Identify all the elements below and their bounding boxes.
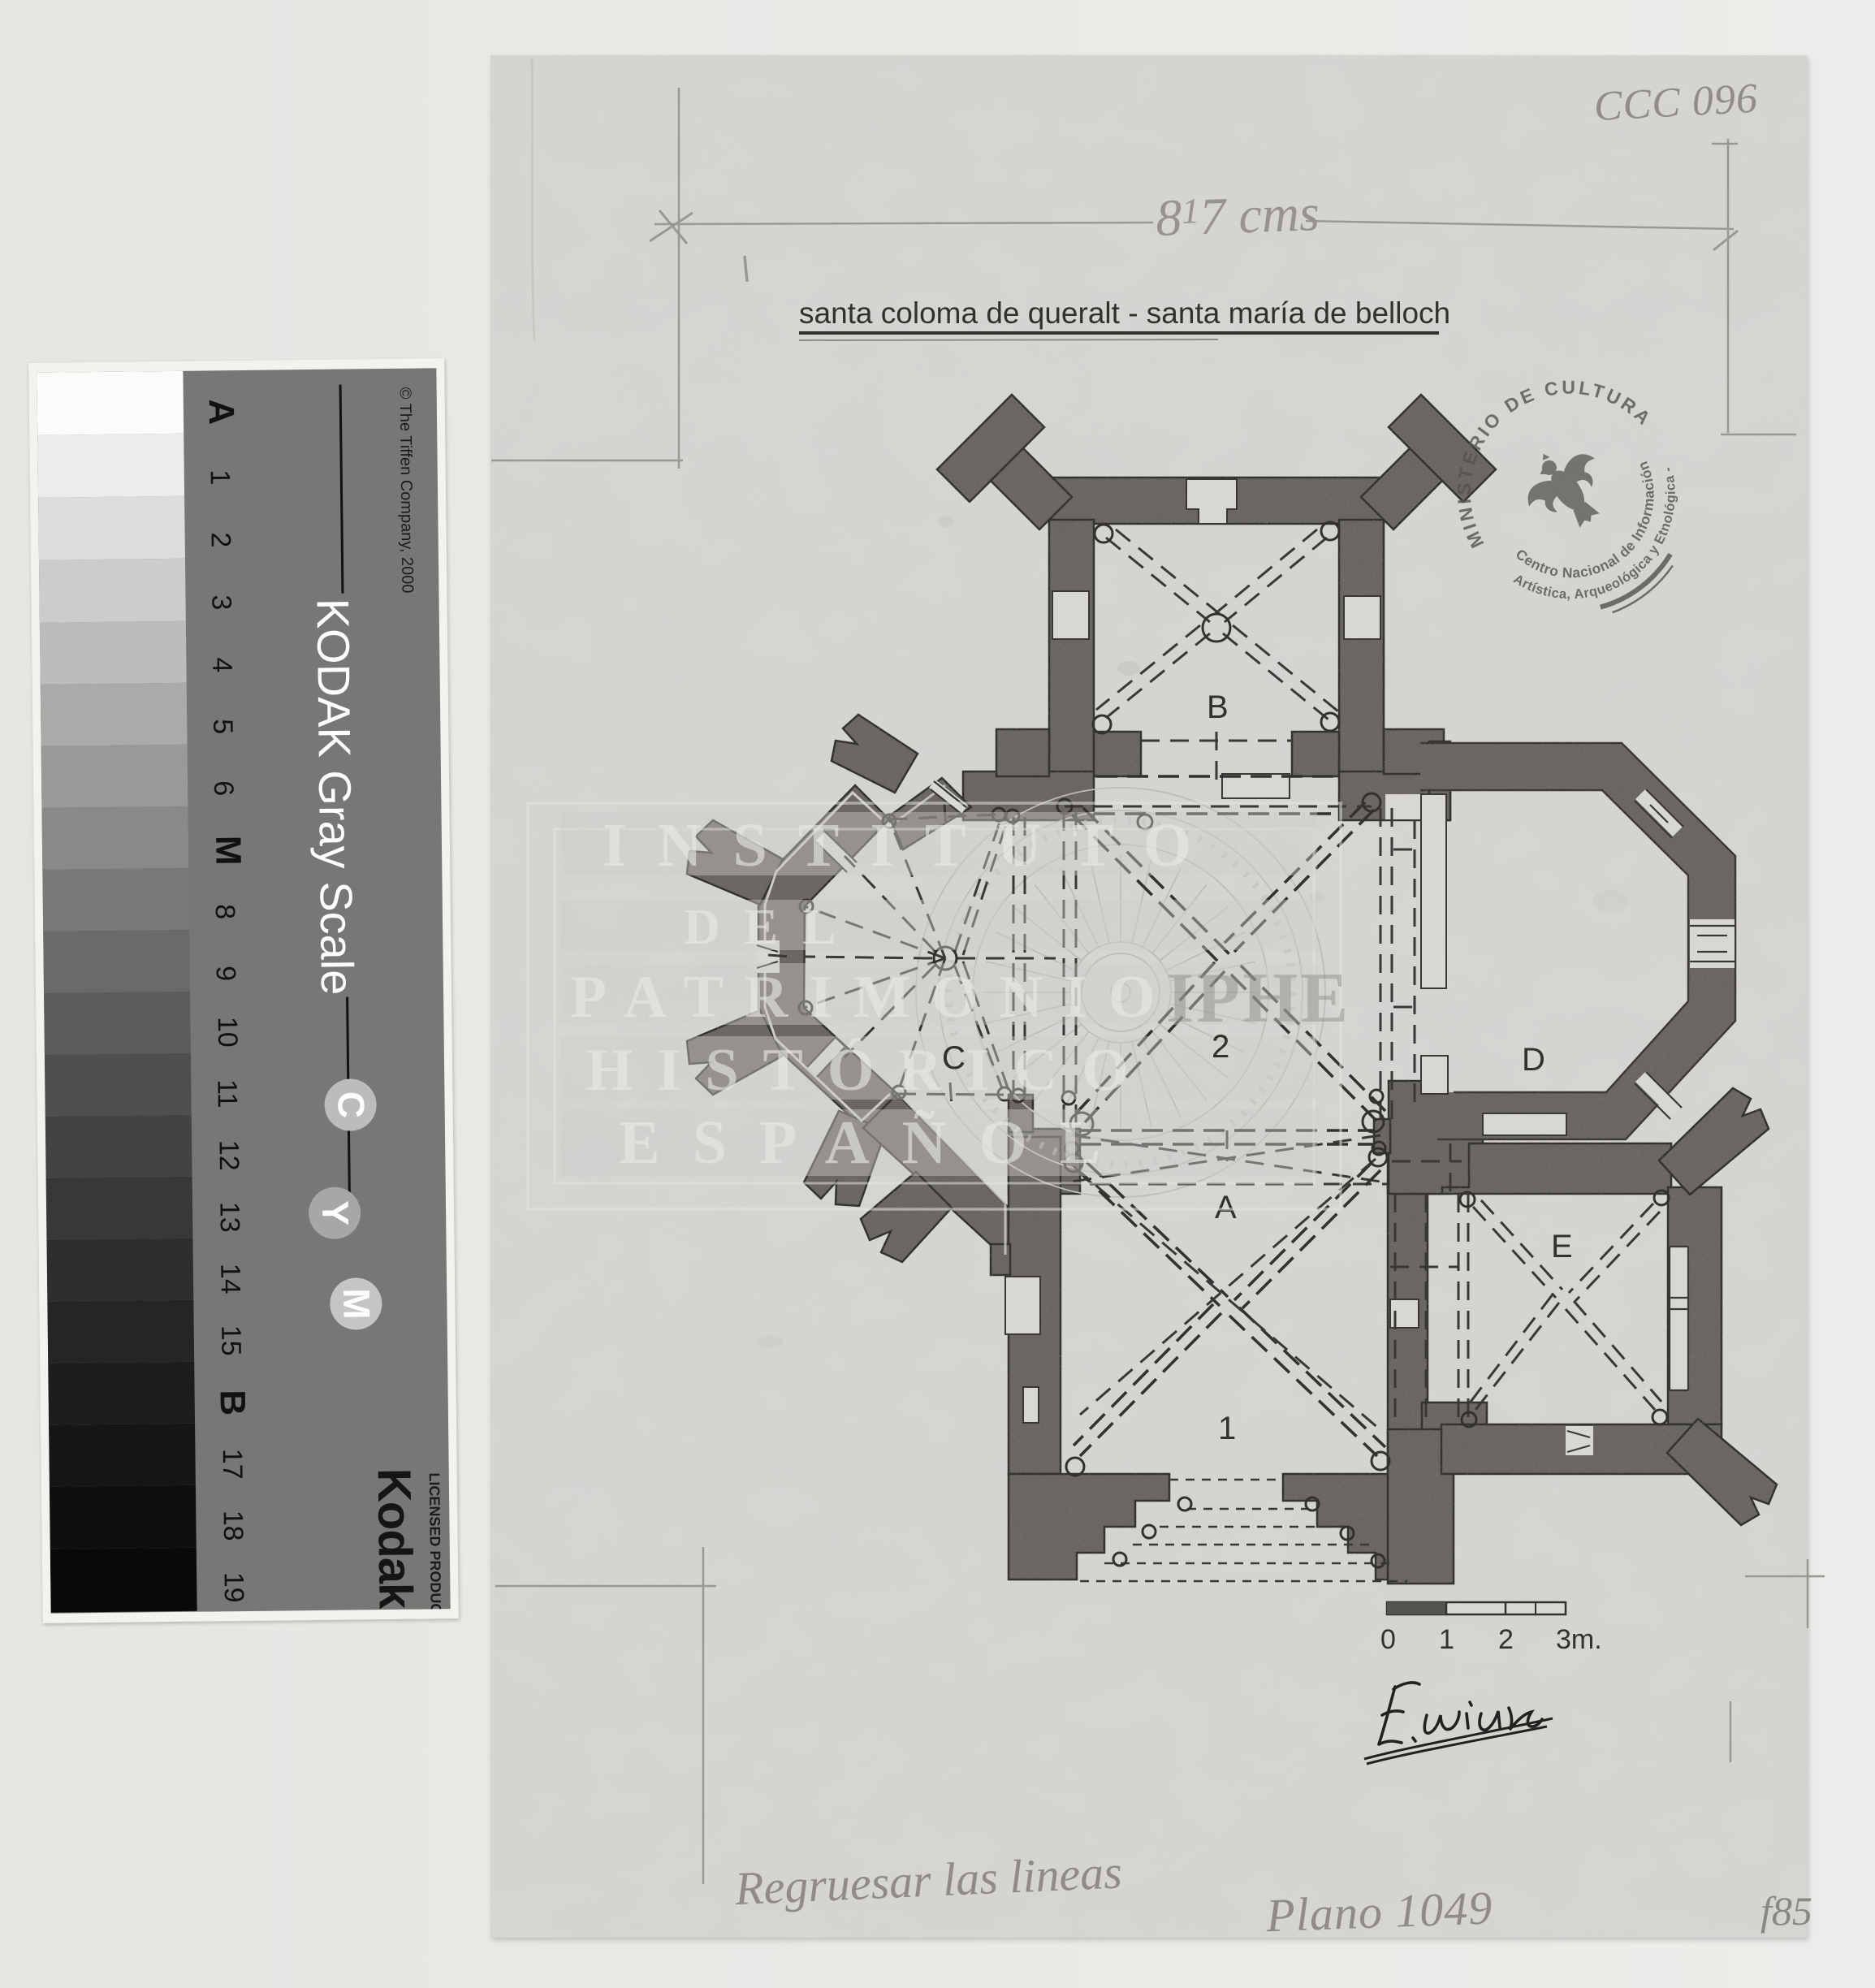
svg-text:IPHE: IPHE — [1166, 959, 1350, 1038]
svg-text:DEL: DEL — [684, 900, 860, 955]
svg-text:santa coloma de queralt - sant: santa coloma de queralt - santa maría de… — [799, 296, 1450, 330]
svg-text:Plano 1049: Plano 1049 — [1264, 1882, 1493, 1943]
svg-text:2: 2 — [1212, 1029, 1229, 1065]
svg-text:C: C — [942, 1040, 966, 1076]
svg-text:E: E — [1551, 1229, 1573, 1264]
svg-text:1: 1 — [1439, 1624, 1454, 1655]
svg-text:ESPAÑOL: ESPAÑOL — [619, 1109, 1133, 1177]
svg-text:PATRIMONIO: PATRIMONIO — [570, 964, 1176, 1031]
svg-text:0: 0 — [1380, 1624, 1396, 1655]
svg-text:B: B — [1207, 689, 1229, 725]
svg-text:HISTÓRICO: HISTÓRICO — [586, 1037, 1153, 1104]
svg-text:D: D — [1522, 1042, 1545, 1078]
svg-text:817 cms: 817 cms — [1155, 184, 1320, 247]
svg-text:INSTITUTO: INSTITUTO — [603, 811, 1222, 879]
svg-text:CCC 096: CCC 096 — [1593, 76, 1760, 130]
svg-text:1: 1 — [1218, 1411, 1236, 1446]
svg-text:f85: f85 — [1761, 1888, 1812, 1934]
svg-text:2: 2 — [1498, 1624, 1514, 1655]
svg-text:3m.: 3m. — [1556, 1624, 1602, 1655]
svg-text:A: A — [1215, 1190, 1237, 1225]
